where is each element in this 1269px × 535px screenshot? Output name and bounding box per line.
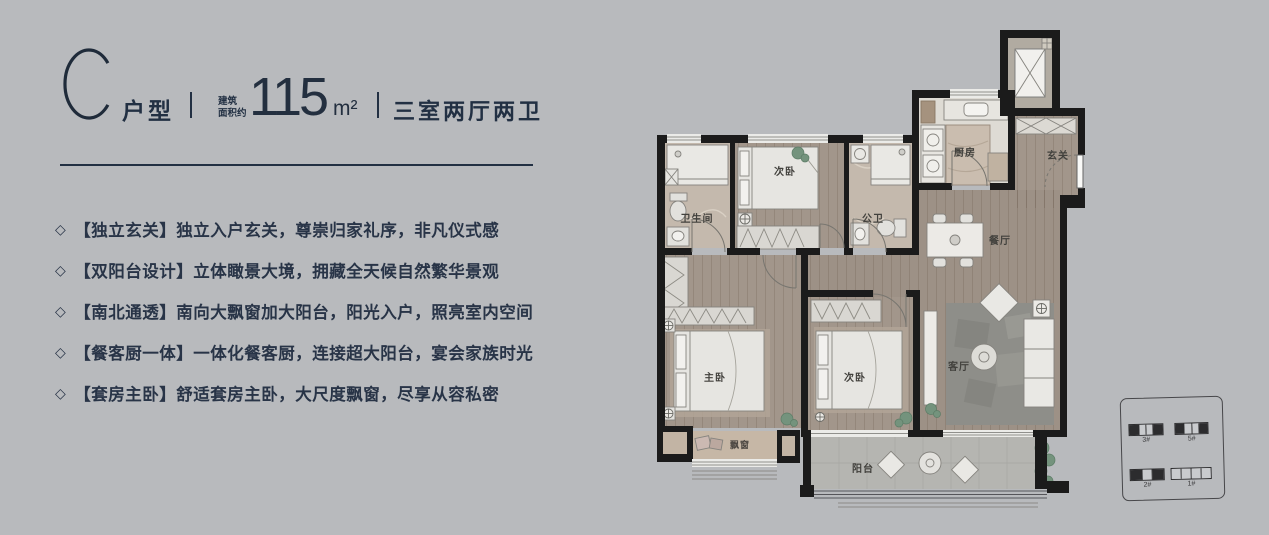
area-caption: 建筑 面积约	[218, 96, 247, 120]
area-caption-line1: 建筑	[218, 96, 247, 108]
room-label-entry: 玄关	[1047, 149, 1069, 162]
floor-plan: 卫生间 次卧 公卫 厨房 玄关 餐厅 主卧 次卧 客厅 飘窗 阳台	[648, 23, 1098, 528]
room-label-dining: 餐厅	[988, 234, 1011, 247]
building-label: 5#	[1175, 434, 1209, 445]
building-bar	[1174, 422, 1208, 435]
area-caption-line2: 面积约	[218, 108, 247, 120]
header-rule	[60, 164, 533, 166]
room-label-living: 客厅	[947, 360, 970, 373]
feature-item: ◇【南北通透】南向大飘窗加大阳台，阳光入户，照亮室内空间	[55, 299, 575, 323]
area-value: 115	[249, 70, 326, 124]
area-unit: m²	[333, 97, 358, 121]
room-label-kitchen: 厨房	[954, 146, 976, 159]
type-letter-c	[60, 46, 118, 122]
site-building-2: 2#	[1130, 468, 1166, 491]
site-building-5: 5#	[1174, 422, 1209, 445]
room-label-bedroom-top: 次卧	[774, 165, 796, 178]
room-label-balcony: 阳台	[852, 462, 874, 475]
feature-text: 【双阳台设计】立体瞰景大境，拥藏全天候自然繁华景观	[74, 258, 499, 282]
feature-item: ◇【套房主卧】舒适套房主卧，大尺度飘窗，尽享从容私密	[55, 381, 575, 405]
building-label: 2#	[1130, 480, 1165, 491]
diamond-icon: ◇	[55, 385, 66, 402]
room-label-public-bath: 公卫	[862, 213, 884, 225]
room-label-master-bedroom: 主卧	[704, 371, 726, 384]
feature-text: 【餐客厨一体】一体化餐客厨，连接超大阳台，宴会家族时光	[74, 340, 533, 364]
feature-text: 【套房主卧】舒适套房主卧，大尺度飘窗，尽享从容私密	[74, 381, 499, 405]
diamond-icon: ◇	[55, 344, 66, 361]
type-label: 户型	[122, 92, 174, 126]
building-bar	[1128, 423, 1163, 436]
room-label-bedroom-bottom: 次卧	[844, 371, 866, 384]
feature-text: 【南北通透】南向大飘窗加大阳台，阳光入户，照亮室内空间	[74, 299, 533, 323]
feature-item: ◇【餐客厨一体】一体化餐客厨，连接超大阳台，宴会家族时光	[55, 340, 575, 364]
feature-text: 【独立玄关】独立入户玄关，尊崇归家礼序，非凡仪式感	[74, 217, 499, 241]
room-label-ensuite-bath: 卫生间	[681, 212, 714, 225]
feature-item: ◇【独立玄关】独立入户玄关，尊崇归家礼序，非凡仪式感	[55, 217, 575, 241]
site-building-3: 3#	[1128, 423, 1164, 446]
feature-list: ◇【独立玄关】独立入户玄关，尊崇归家礼序，非凡仪式感 ◇【双阳台设计】立体瞰景大…	[55, 217, 575, 405]
site-building-1: 1#	[1171, 467, 1213, 490]
building-label: 1#	[1171, 479, 1212, 490]
layout-spec: 三室两厅两卫	[393, 94, 543, 126]
diamond-icon: ◇	[55, 262, 66, 279]
site-map: 3# 5# 2# 1#	[1120, 396, 1226, 502]
building-bar	[1130, 468, 1165, 481]
building-label: 3#	[1129, 435, 1164, 446]
diamond-icon: ◇	[55, 221, 66, 238]
feature-item: ◇【双阳台设计】立体瞰景大境，拥藏全天候自然繁华景观	[55, 258, 575, 282]
building-bar	[1171, 467, 1212, 480]
header-divider-2	[377, 92, 379, 118]
header-divider	[190, 92, 192, 118]
room-label-bay-window: 飘窗	[730, 439, 750, 450]
diamond-icon: ◇	[55, 303, 66, 320]
